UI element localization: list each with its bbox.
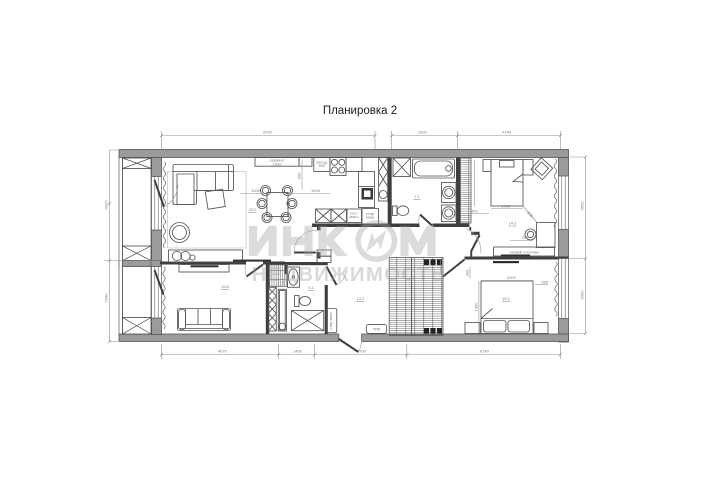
svg-text:2000: 2000 bbox=[507, 275, 517, 280]
svg-text:1700: 1700 bbox=[501, 204, 511, 209]
svg-text:2940: 2940 bbox=[104, 293, 109, 303]
svg-text:4420: 4420 bbox=[104, 200, 109, 210]
svg-text:7.1: 7.1 bbox=[414, 194, 420, 199]
svg-text:маш.: маш. bbox=[349, 214, 358, 219]
svg-text:1450: 1450 bbox=[293, 349, 303, 354]
svg-text:4140: 4140 bbox=[502, 130, 512, 135]
svg-text:6140: 6140 bbox=[480, 349, 490, 354]
svg-text:800: 800 bbox=[526, 210, 535, 219]
svg-text:4050: 4050 bbox=[580, 201, 585, 211]
svg-text:15.6: 15.6 bbox=[221, 284, 230, 289]
svg-text:низкий стеллаж: низкий стеллаж bbox=[509, 250, 538, 255]
svg-text:4670: 4670 bbox=[218, 349, 228, 354]
svg-text:1005: 1005 bbox=[311, 188, 321, 193]
svg-text:пуф: пуф bbox=[373, 326, 381, 331]
svg-text:3000: 3000 bbox=[580, 290, 585, 300]
svg-text:маш: маш bbox=[366, 215, 374, 220]
svg-text:750: 750 bbox=[521, 235, 528, 240]
svg-text:2600: 2600 bbox=[418, 130, 428, 135]
svg-text:600: 600 bbox=[319, 163, 326, 168]
svg-text:1005: 1005 bbox=[251, 188, 261, 193]
svg-text:1900: 1900 bbox=[273, 161, 283, 166]
svg-text:900: 900 bbox=[297, 172, 302, 179]
svg-text:33.0: 33.0 bbox=[249, 207, 258, 212]
svg-text:14.0: 14.0 bbox=[509, 221, 518, 226]
svg-text:900: 900 bbox=[471, 209, 478, 214]
svg-text:1400: 1400 bbox=[474, 302, 479, 312]
svg-text:16.1: 16.1 bbox=[502, 296, 511, 301]
svg-text:3700: 3700 bbox=[357, 349, 367, 354]
svg-text:8700: 8700 bbox=[263, 130, 273, 135]
svg-text:900: 900 bbox=[542, 280, 549, 285]
svg-text:300: 300 bbox=[465, 269, 470, 276]
svg-text:13.2: 13.2 bbox=[357, 296, 366, 301]
svg-text:НЕДВИЖИМОСТЬ: НЕДВИЖИМОСТЬ bbox=[252, 263, 447, 286]
svg-text:стир.маш: стир.маш bbox=[328, 312, 333, 330]
